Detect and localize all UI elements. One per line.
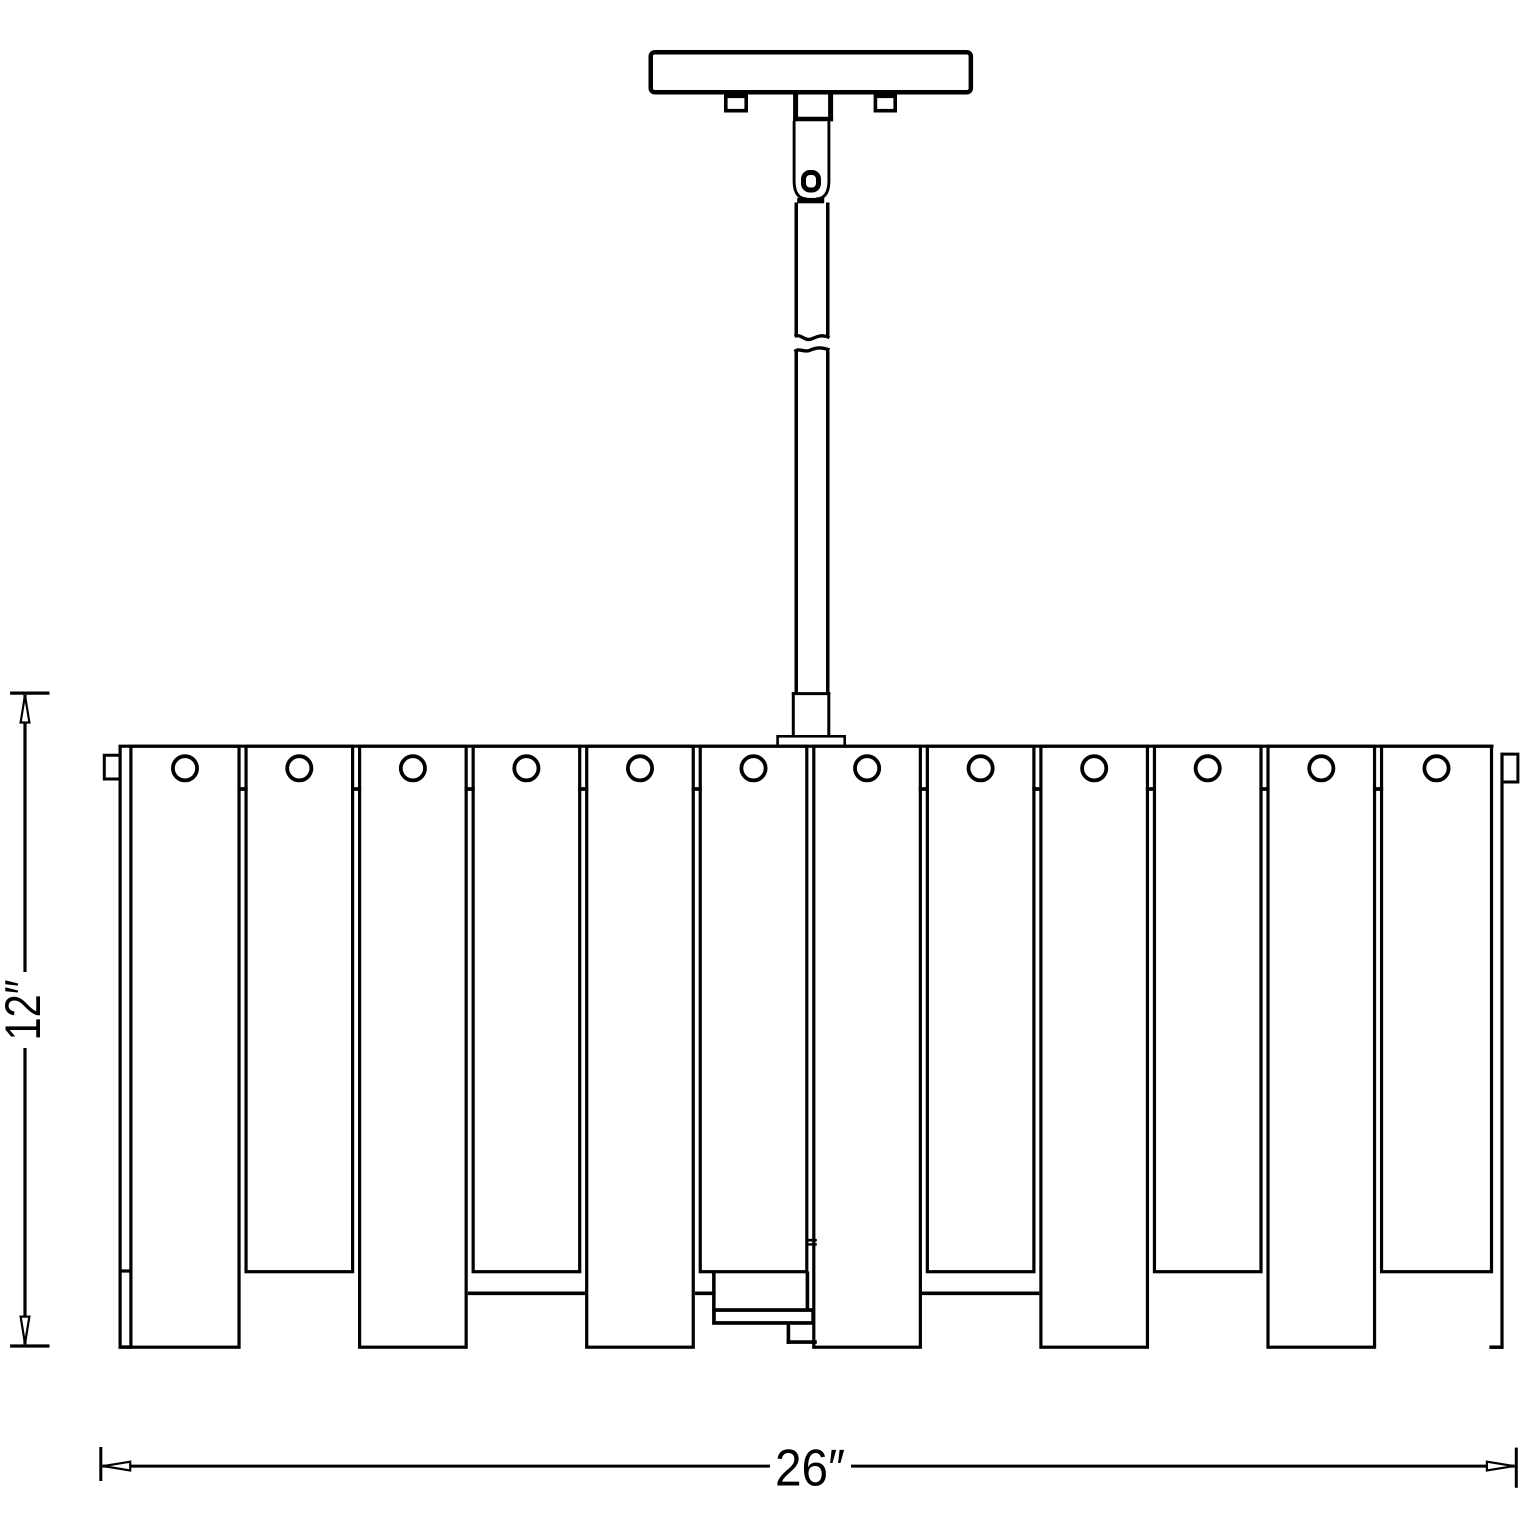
svg-text:12″: 12″ (0, 980, 51, 1041)
svg-text:26″: 26″ (775, 1439, 845, 1497)
